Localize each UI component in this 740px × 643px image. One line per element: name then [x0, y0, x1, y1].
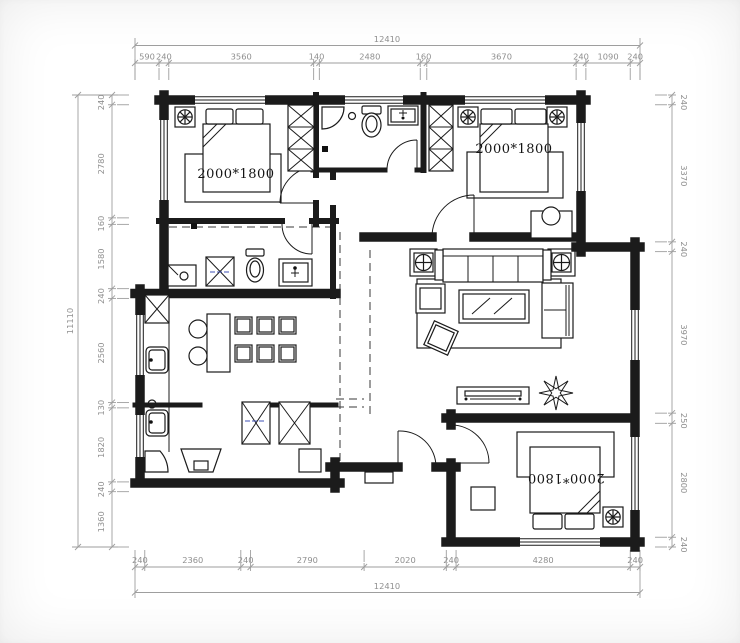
svg-text:240: 240 — [156, 52, 172, 62]
svg-text:240: 240 — [96, 94, 106, 110]
svg-text:240: 240 — [573, 52, 589, 62]
pillow — [481, 109, 512, 124]
bedroom-top-right — [429, 105, 572, 238]
pillow — [236, 109, 263, 124]
shoe-cabinet — [471, 487, 495, 510]
svg-text:240: 240 — [627, 555, 643, 565]
dining-chairs — [235, 317, 296, 362]
svg-text:2790: 2790 — [297, 555, 318, 565]
svg-text:240: 240 — [443, 555, 459, 565]
pillow — [206, 109, 233, 124]
svg-text:3970: 3970 — [679, 324, 689, 345]
door-entry — [398, 431, 436, 467]
bedroom-top-left — [175, 105, 314, 202]
svg-text:240: 240 — [679, 94, 689, 110]
svg-text:2800: 2800 — [679, 472, 689, 493]
wc-top — [322, 106, 418, 152]
svg-text:240: 240 — [238, 555, 254, 565]
bed-size-label: 2000*1800 — [197, 167, 274, 182]
svg-text:240: 240 — [679, 241, 689, 257]
sofa — [435, 249, 551, 282]
side-table-lamp-icon — [410, 249, 437, 276]
floor-plan-canvas: 5902403560140248016036702401090240240236… — [0, 0, 740, 643]
ensuite-bathroom — [168, 223, 312, 286]
corner-counter — [145, 451, 168, 472]
svg-text:140: 140 — [309, 52, 325, 62]
bed-size-label: 2000*1800 — [527, 470, 604, 485]
wardrobe-icon — [429, 105, 453, 171]
pillow — [565, 514, 594, 529]
chair — [542, 207, 560, 225]
ceiling-lamp-icon — [547, 107, 567, 127]
svg-text:130: 130 — [96, 400, 106, 416]
cabinet-icon — [279, 402, 310, 444]
svg-text:240: 240 — [679, 537, 689, 553]
svg-text:2480: 2480 — [359, 52, 380, 62]
svg-text:1820: 1820 — [96, 437, 106, 458]
stool — [189, 320, 207, 338]
overall-width-bottom: 12410 — [374, 581, 400, 591]
svg-text:2560: 2560 — [96, 342, 106, 363]
kitchen — [145, 402, 321, 472]
svg-text:240: 240 — [627, 52, 643, 62]
stove-icon — [181, 449, 221, 472]
cabinet-icon — [145, 295, 169, 323]
pillow — [533, 514, 562, 529]
stool — [189, 347, 207, 365]
svg-text:3370: 3370 — [679, 165, 689, 186]
floor-drain-icon — [349, 113, 356, 120]
sink-icon — [146, 410, 168, 436]
svg-text:590: 590 — [139, 52, 155, 62]
svg-text:2360: 2360 — [182, 555, 203, 565]
door-bedroom-top-right — [432, 195, 474, 237]
svg-text:1360: 1360 — [96, 511, 106, 532]
bed-size-label: 2000*1800 — [475, 142, 552, 157]
svg-text:240: 240 — [96, 481, 106, 497]
vanity-icon — [279, 259, 312, 286]
ceiling-lamp-icon — [603, 507, 623, 527]
overall-width-top: 12410 — [374, 34, 400, 44]
svg-text:1580: 1580 — [96, 248, 106, 269]
svg-text:160: 160 — [96, 216, 106, 232]
dining-table — [207, 314, 230, 372]
svg-text:240: 240 — [96, 288, 106, 304]
ceiling-lamp-icon — [175, 107, 195, 127]
tv-console — [457, 387, 529, 404]
cabinet-icon — [299, 449, 321, 472]
svg-text:3670: 3670 — [491, 52, 512, 62]
ottoman — [424, 321, 458, 355]
entry-step — [365, 472, 393, 483]
toilet-icon — [246, 249, 264, 282]
pillow — [515, 109, 546, 124]
switch — [322, 146, 328, 152]
side-table-lamp-icon — [548, 249, 575, 276]
armchair — [416, 284, 445, 313]
door-wc — [387, 140, 417, 170]
bed — [480, 124, 548, 192]
ceiling-lamp-icon — [458, 107, 478, 127]
svg-text:2780: 2780 — [96, 153, 106, 174]
door-bedroom-bottom-right — [451, 425, 489, 463]
svg-text:1090: 1090 — [597, 52, 618, 62]
overall-height-left: 11110 — [65, 308, 75, 334]
svg-text:3560: 3560 — [231, 52, 252, 62]
sink-icon — [146, 347, 168, 373]
switch — [191, 223, 197, 229]
svg-text:4280: 4280 — [533, 555, 554, 565]
svg-text:250: 250 — [679, 413, 689, 429]
shower-icon — [206, 257, 234, 286]
coffee-table — [459, 290, 529, 323]
plant-icon — [532, 369, 580, 417]
cabinet-icon — [242, 402, 270, 444]
toilet-icon — [362, 106, 381, 137]
svg-text:2020: 2020 — [395, 555, 416, 565]
corner-shelf — [322, 107, 344, 129]
wardrobe-icon — [288, 105, 314, 171]
foyer — [365, 472, 495, 510]
svg-text:240: 240 — [132, 555, 148, 565]
living-room — [410, 249, 580, 417]
corner-basin-icon — [168, 265, 196, 286]
chaise — [542, 283, 573, 338]
door-ensuite-bath — [282, 224, 312, 254]
svg-text:160: 160 — [416, 52, 432, 62]
washbasin-icon — [388, 106, 418, 125]
